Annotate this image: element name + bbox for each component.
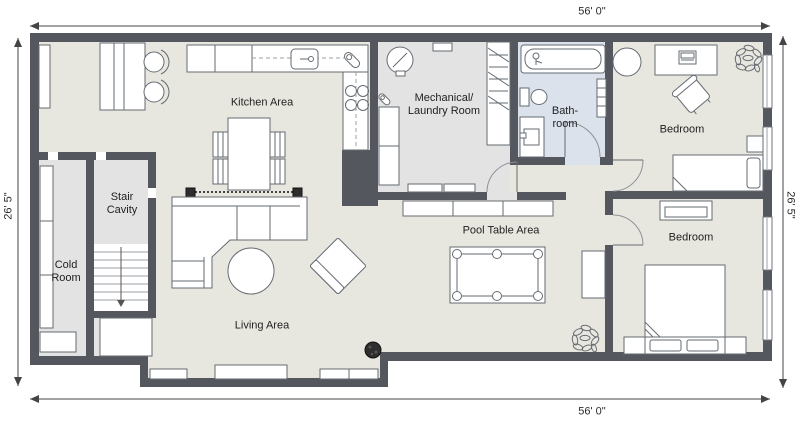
wall-cabinet <box>150 369 187 379</box>
wall-cabinet <box>320 369 349 379</box>
room-label-pool: Pool Table Area <box>463 225 540 238</box>
desk <box>655 45 717 75</box>
stove-counter <box>343 72 369 150</box>
round-table <box>613 48 641 76</box>
room-label-living: Living Area <box>235 320 289 333</box>
pillow <box>687 340 718 351</box>
pocket <box>453 292 462 301</box>
wall-stair-right <box>148 160 156 318</box>
wall-laundry-bottom-a <box>370 192 487 200</box>
kitchen-sink <box>291 49 318 69</box>
wall-bedroom-left-b <box>605 245 613 352</box>
dining-chair <box>213 159 228 184</box>
bathroom-vanity <box>520 117 544 157</box>
room-label-kitchen: Kitchen Area <box>231 97 293 110</box>
wall-top <box>30 33 772 42</box>
wall-bedrooms-divider <box>605 191 772 199</box>
room-label-bedroom-top: Bedroom <box>660 124 705 137</box>
cabinet <box>379 107 399 146</box>
room-label-stair: Stair Cavity <box>107 191 138 217</box>
room-label-cold: Cold Room <box>51 259 80 285</box>
dining-table <box>228 118 270 190</box>
pool-table <box>450 247 545 303</box>
nightstand <box>624 337 645 354</box>
dimension-top-label: 56' 0" <box>578 6 605 19</box>
vent <box>433 43 452 51</box>
wall-bottom-left <box>30 356 148 365</box>
dark-plant <box>365 342 381 358</box>
cabinet <box>379 146 399 185</box>
pocket <box>534 292 543 301</box>
ladder-rack <box>487 42 510 145</box>
bench <box>40 332 76 352</box>
wall-laundry-bottom-b <box>517 192 566 200</box>
pillow <box>747 158 760 188</box>
bathtub <box>521 45 605 73</box>
nightstand <box>725 337 746 354</box>
bed-single <box>673 155 763 191</box>
dining-chair <box>213 132 228 157</box>
kitchen-counter <box>187 45 368 72</box>
nightstand <box>747 136 763 152</box>
wall-laundry-bath-divider <box>510 42 518 165</box>
pillow <box>650 340 681 351</box>
wall-bath-bottom-a <box>510 157 565 165</box>
stair-landing <box>100 318 152 356</box>
sideboard <box>403 201 553 216</box>
wall-left <box>30 33 39 365</box>
room-label-mechanical: Mechanical/ Laundry Room <box>408 92 480 118</box>
shelf <box>40 166 53 221</box>
dining-chair <box>270 132 285 157</box>
cabinet <box>408 184 442 192</box>
room-label-bathroom: Bath- room <box>552 105 578 131</box>
dining-chair <box>270 159 285 184</box>
tall-cabinet <box>39 45 50 108</box>
staircase <box>94 244 152 356</box>
floor-plan: 56' 0" 56' 0" 26' 5" 26' 5" Kitchen Area… <box>0 0 800 433</box>
pocket <box>453 250 462 259</box>
wall-cabinet <box>215 365 287 379</box>
room-label-bedroom-bottom: Bedroom <box>669 232 714 245</box>
towel-radiator <box>597 79 606 117</box>
closet <box>582 251 605 298</box>
chair <box>144 52 164 72</box>
pocket <box>493 292 502 301</box>
coffee-table <box>228 248 274 294</box>
dimension-right-label: 26' 5" <box>784 191 797 218</box>
cabinet <box>444 184 475 192</box>
bed-double <box>645 265 725 354</box>
chair <box>144 82 164 102</box>
pocket <box>534 250 543 259</box>
dimension-bottom-label: 56' 0" <box>578 406 605 419</box>
pocket <box>493 250 502 259</box>
wall-cold-stair-divider <box>86 160 94 356</box>
dresser <box>660 201 712 220</box>
dimension-left-label: 26' 5" <box>3 192 16 219</box>
wall-cabinet <box>349 369 378 379</box>
